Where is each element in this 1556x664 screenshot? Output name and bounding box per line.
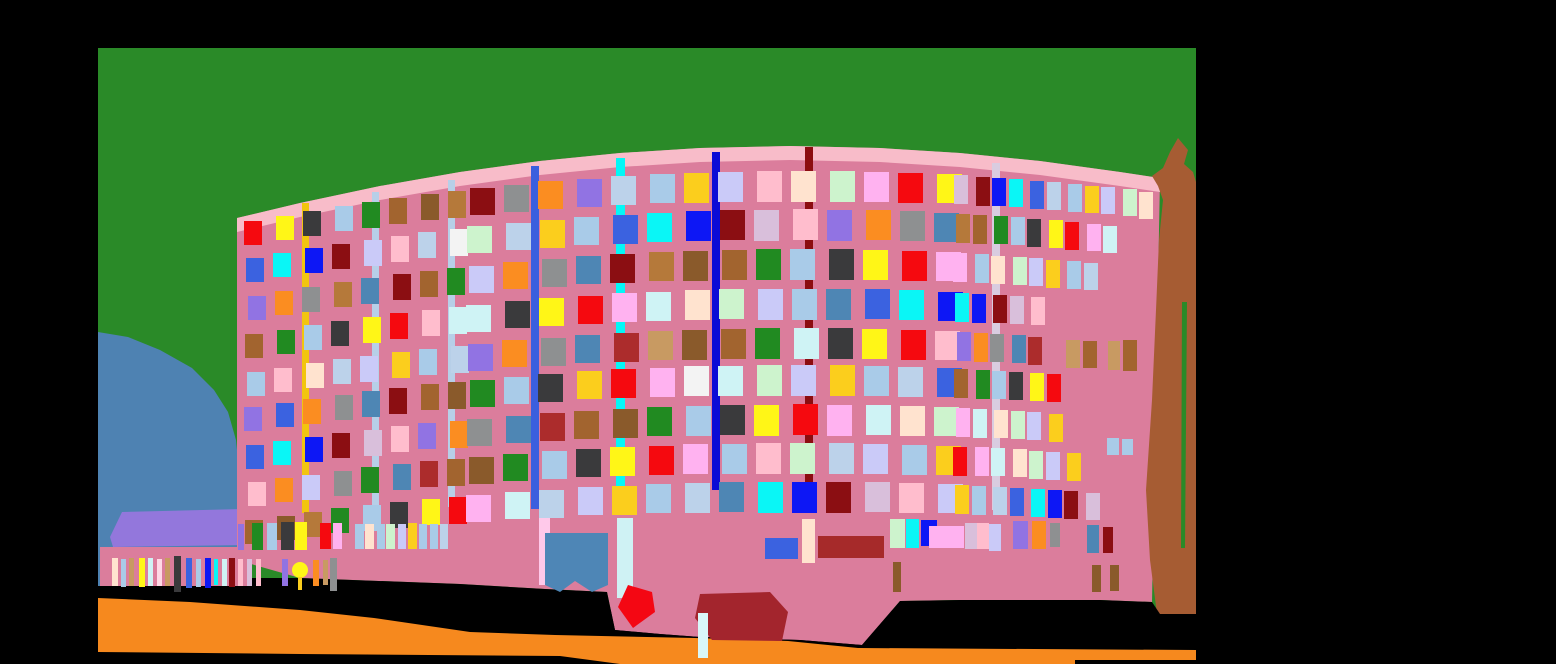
window — [302, 287, 320, 312]
scene-svg — [0, 0, 1556, 664]
base-stripe — [205, 558, 211, 588]
ground-window — [440, 524, 448, 549]
window — [754, 405, 779, 436]
window — [421, 194, 439, 220]
window — [1013, 449, 1027, 477]
window — [393, 464, 411, 490]
window — [1103, 226, 1117, 253]
window — [468, 344, 493, 371]
window — [276, 403, 294, 427]
window — [360, 356, 378, 382]
window — [972, 486, 986, 515]
ground-window — [1013, 521, 1028, 549]
window — [758, 482, 783, 513]
wall-window — [1107, 438, 1119, 455]
window — [954, 175, 968, 204]
window — [684, 366, 709, 396]
window — [542, 259, 567, 287]
window — [686, 211, 711, 241]
base-stripe — [112, 558, 118, 586]
window — [828, 328, 853, 359]
window — [419, 349, 437, 375]
base-stripe — [157, 559, 162, 586]
window — [1012, 335, 1026, 363]
window — [899, 483, 924, 513]
window — [901, 330, 926, 360]
window — [578, 487, 603, 515]
window — [793, 404, 818, 435]
window — [1027, 412, 1041, 440]
window — [540, 413, 565, 441]
window — [574, 217, 599, 245]
window — [275, 291, 293, 315]
ground-window — [320, 523, 331, 549]
wall-window — [1108, 341, 1120, 370]
window — [1139, 192, 1153, 219]
window — [975, 447, 989, 476]
window — [364, 240, 382, 266]
window — [505, 301, 530, 328]
window — [1010, 488, 1024, 516]
window — [418, 423, 436, 449]
window — [1029, 451, 1043, 479]
window — [274, 368, 292, 392]
window — [389, 198, 407, 224]
window — [334, 471, 352, 496]
window — [1065, 222, 1079, 250]
post — [1110, 565, 1119, 591]
window — [246, 258, 264, 282]
yellow-balloon — [292, 562, 308, 578]
wall-window — [1123, 340, 1137, 371]
window — [1028, 337, 1042, 365]
window — [994, 216, 1008, 244]
base-post — [330, 558, 337, 591]
window — [422, 499, 440, 525]
window — [827, 210, 852, 241]
window — [332, 244, 350, 269]
window — [466, 305, 491, 332]
window — [538, 374, 563, 402]
window — [650, 174, 675, 203]
window — [503, 262, 528, 289]
window — [389, 388, 407, 414]
ground-window — [377, 524, 385, 549]
window — [335, 206, 353, 231]
ground-window — [355, 524, 364, 549]
yellow-balloon-stem — [298, 577, 302, 590]
window — [720, 210, 745, 240]
window — [991, 448, 1005, 476]
post — [1092, 565, 1101, 592]
window — [1064, 491, 1078, 519]
window — [722, 250, 747, 280]
mullion-royal — [531, 166, 539, 509]
window — [684, 173, 709, 203]
window — [866, 405, 891, 435]
window — [646, 484, 671, 513]
window — [649, 252, 674, 281]
window — [542, 451, 567, 479]
window — [1068, 184, 1082, 212]
window — [647, 407, 672, 436]
window — [577, 371, 602, 399]
window — [718, 172, 743, 202]
window — [362, 202, 380, 228]
window — [575, 335, 600, 363]
window — [934, 213, 959, 242]
window — [1049, 414, 1063, 442]
window — [899, 290, 924, 320]
base-stripe — [222, 559, 227, 586]
window — [610, 254, 635, 283]
window — [244, 407, 262, 431]
window — [991, 256, 1005, 284]
ground-shadow-bottom-right — [1075, 660, 1196, 664]
window — [449, 307, 467, 334]
window — [467, 419, 492, 446]
window — [248, 482, 266, 506]
ground-window — [890, 519, 905, 548]
window — [539, 298, 564, 326]
ground-window — [365, 524, 374, 549]
window — [578, 296, 603, 324]
window — [864, 172, 889, 202]
window — [902, 251, 927, 281]
window — [504, 185, 529, 212]
window — [576, 256, 601, 284]
window — [506, 416, 531, 443]
window — [275, 478, 293, 502]
window — [1031, 297, 1045, 325]
window — [276, 216, 294, 240]
window — [756, 443, 781, 474]
window — [611, 176, 636, 205]
window — [1083, 341, 1097, 368]
window — [682, 330, 707, 360]
window — [450, 229, 468, 256]
window — [244, 221, 262, 245]
window — [718, 366, 743, 396]
ground-window — [408, 523, 417, 549]
window — [1046, 260, 1060, 288]
window — [393, 274, 411, 300]
base-stripe — [214, 559, 218, 585]
ground-window — [386, 524, 395, 549]
base-stripe — [129, 558, 134, 586]
window — [791, 171, 816, 202]
window — [1047, 374, 1061, 402]
window — [955, 293, 969, 322]
window — [719, 289, 744, 319]
window — [902, 445, 927, 475]
window — [686, 406, 711, 436]
window — [538, 181, 563, 209]
window — [756, 249, 781, 280]
ground-window — [989, 524, 1001, 551]
window — [1101, 187, 1115, 214]
window — [391, 426, 409, 452]
base-stripe — [247, 559, 252, 586]
window — [248, 296, 266, 320]
window — [422, 310, 440, 336]
window — [505, 492, 530, 519]
white-pole — [698, 613, 708, 658]
window — [755, 328, 780, 359]
window — [335, 395, 353, 420]
window — [421, 384, 439, 410]
window — [1085, 186, 1099, 213]
window — [506, 223, 531, 250]
window — [1010, 296, 1024, 324]
window — [540, 220, 565, 248]
segmented-photo — [0, 0, 1556, 664]
window — [900, 406, 925, 436]
window — [830, 171, 855, 202]
window — [361, 278, 379, 304]
window — [1030, 373, 1044, 401]
window — [361, 467, 379, 493]
window — [863, 444, 888, 474]
window — [758, 289, 783, 320]
window — [331, 321, 349, 346]
window — [1011, 411, 1025, 439]
window — [957, 332, 971, 361]
base-stripe — [282, 559, 288, 586]
base-post — [174, 556, 181, 592]
window — [502, 340, 527, 367]
window — [1049, 220, 1063, 248]
ground-window — [1087, 525, 1099, 553]
base-stripe — [229, 558, 235, 587]
window — [791, 365, 816, 396]
window — [450, 421, 468, 448]
ground-window — [281, 522, 294, 550]
window — [992, 371, 1006, 399]
window — [993, 487, 1007, 515]
window — [1009, 372, 1023, 400]
window — [469, 457, 494, 484]
ground-window — [1032, 521, 1046, 549]
window — [900, 211, 925, 241]
window — [956, 214, 970, 243]
window — [304, 325, 322, 350]
base-stripe — [148, 558, 153, 586]
window — [1030, 181, 1044, 209]
window — [302, 475, 320, 500]
window — [792, 289, 817, 320]
window — [247, 372, 265, 396]
window — [574, 411, 599, 439]
window — [954, 369, 968, 398]
ground-window — [267, 523, 277, 550]
base-stripe — [186, 558, 192, 588]
window — [649, 446, 674, 475]
window — [1066, 340, 1080, 368]
window — [1011, 217, 1025, 245]
ground-window — [430, 524, 438, 549]
window — [305, 437, 323, 462]
ground-window — [419, 524, 427, 549]
window — [792, 482, 817, 513]
window — [470, 188, 495, 215]
window — [650, 368, 675, 397]
window — [955, 485, 969, 514]
window — [1031, 489, 1045, 517]
ground-window — [802, 519, 815, 563]
window — [1027, 219, 1041, 247]
window — [613, 409, 638, 438]
window — [976, 370, 990, 399]
wall-window — [1122, 439, 1133, 455]
ground-window — [295, 522, 307, 550]
mullion-lightsteel-1 — [372, 192, 379, 510]
window — [829, 443, 854, 474]
window — [864, 366, 889, 396]
window — [865, 289, 890, 319]
window — [420, 461, 438, 487]
window — [827, 405, 852, 436]
window — [273, 441, 291, 465]
window — [826, 289, 851, 320]
window — [720, 405, 745, 435]
window — [1087, 224, 1101, 251]
window — [648, 331, 673, 360]
base-stripe — [165, 558, 170, 586]
ground-window — [765, 538, 798, 559]
base-stripe — [139, 558, 145, 587]
window — [277, 330, 295, 354]
window — [306, 363, 324, 388]
base-stripe — [121, 559, 126, 587]
window — [975, 254, 989, 283]
ground-window — [1050, 523, 1060, 547]
window — [1067, 261, 1081, 289]
window — [418, 232, 436, 258]
window — [754, 210, 779, 241]
ground-window — [1103, 527, 1113, 553]
window — [364, 430, 382, 456]
base-stripe — [196, 559, 201, 587]
window — [448, 191, 466, 218]
window — [898, 367, 923, 397]
post — [893, 562, 901, 592]
window — [467, 226, 492, 253]
ground-banner — [929, 526, 964, 548]
window — [245, 334, 263, 358]
window — [611, 369, 636, 398]
window — [612, 486, 637, 515]
window — [683, 251, 708, 281]
window — [470, 380, 495, 407]
window — [953, 447, 967, 476]
window — [898, 173, 923, 203]
window — [757, 171, 782, 202]
window — [794, 328, 819, 359]
window — [303, 399, 321, 424]
window — [994, 410, 1008, 438]
window — [683, 444, 708, 474]
base-stripe — [256, 559, 261, 586]
window — [793, 209, 818, 240]
window — [862, 329, 887, 359]
mullion-darkblue — [712, 152, 720, 490]
window — [390, 313, 408, 339]
window — [973, 215, 987, 244]
window — [610, 447, 635, 476]
window — [305, 248, 323, 273]
window — [504, 377, 529, 404]
window — [303, 211, 321, 236]
window — [614, 333, 639, 362]
window — [976, 177, 990, 206]
window — [333, 359, 351, 384]
window — [830, 365, 855, 396]
window — [447, 268, 465, 295]
window — [973, 409, 987, 438]
ground-window — [965, 523, 977, 549]
window — [1047, 182, 1061, 210]
base-stripe — [323, 560, 328, 585]
window — [719, 482, 744, 512]
window — [1048, 490, 1062, 518]
window — [974, 333, 988, 362]
window — [790, 249, 815, 280]
window — [865, 482, 890, 512]
window — [363, 317, 381, 343]
window — [972, 294, 986, 323]
base-stripe — [313, 560, 319, 586]
window — [935, 331, 960, 360]
window — [392, 352, 410, 378]
window — [1029, 258, 1043, 286]
base-stripe — [238, 559, 243, 586]
ground-window — [252, 523, 263, 550]
window — [612, 293, 637, 322]
window — [332, 433, 350, 458]
window — [993, 295, 1007, 323]
window — [539, 490, 564, 518]
ground-window — [906, 519, 919, 548]
window — [541, 338, 566, 366]
window — [451, 346, 469, 373]
window — [576, 449, 601, 477]
window — [1084, 263, 1098, 290]
window — [246, 445, 264, 469]
window — [1013, 257, 1027, 285]
dark-red-ramp — [695, 592, 788, 641]
window — [503, 454, 528, 481]
window — [721, 329, 746, 359]
window — [1086, 493, 1100, 520]
ground-window — [977, 523, 989, 549]
window — [1046, 452, 1060, 480]
purple-awning — [110, 509, 245, 547]
window — [685, 290, 710, 320]
window — [273, 253, 291, 277]
window — [447, 459, 465, 486]
window — [992, 178, 1006, 206]
window — [466, 495, 491, 522]
window — [934, 407, 959, 436]
window — [362, 391, 380, 417]
ground-window — [333, 523, 342, 549]
window — [790, 443, 815, 474]
window — [391, 236, 409, 262]
window — [757, 365, 782, 396]
window — [826, 482, 851, 513]
window — [449, 497, 467, 524]
